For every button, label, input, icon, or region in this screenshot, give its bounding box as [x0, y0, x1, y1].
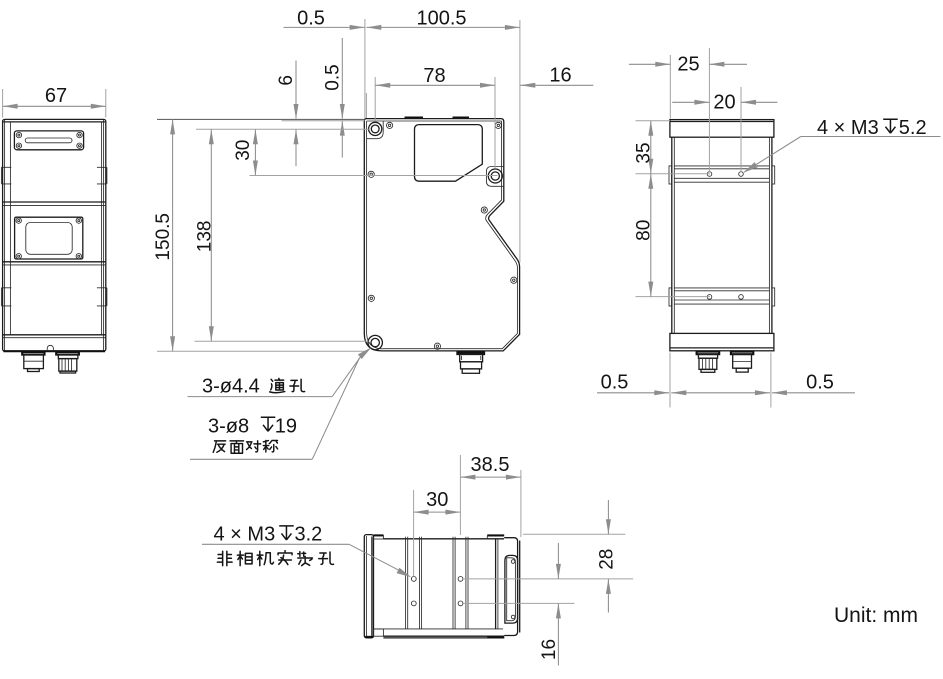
svg-text:150.5: 150.5 — [153, 213, 174, 261]
svg-text:25: 25 — [677, 54, 699, 76]
svg-text:30: 30 — [426, 489, 448, 511]
svg-text:0.5: 0.5 — [297, 8, 325, 30]
svg-text:20: 20 — [713, 92, 735, 114]
svg-text:0.5: 0.5 — [601, 372, 629, 394]
svg-text:4 × M3: 4 × M3 — [817, 117, 879, 139]
svg-text:78: 78 — [423, 65, 445, 87]
svg-text:30: 30 — [233, 140, 254, 161]
svg-text:35: 35 — [634, 142, 655, 163]
svg-text:5.2: 5.2 — [899, 117, 927, 139]
svg-text:0.5: 0.5 — [322, 64, 343, 90]
svg-text:4 × M3: 4 × M3 — [214, 524, 276, 546]
svg-text:100.5: 100.5 — [416, 8, 466, 30]
svg-text:3-ø8: 3-ø8 — [208, 416, 249, 438]
svg-text:6: 6 — [276, 75, 297, 86]
svg-text:38.5: 38.5 — [471, 454, 510, 476]
svg-text:0.5: 0.5 — [806, 372, 834, 394]
svg-text:28: 28 — [597, 549, 618, 570]
svg-text:Unit: mm: Unit: mm — [834, 604, 918, 627]
svg-text:67: 67 — [45, 85, 67, 107]
svg-text:16: 16 — [539, 639, 560, 660]
svg-text:3-ø4.4: 3-ø4.4 — [202, 375, 260, 397]
svg-text:80: 80 — [634, 220, 655, 241]
svg-text:16: 16 — [549, 65, 571, 87]
svg-text:19: 19 — [275, 416, 297, 438]
svg-text:138: 138 — [194, 221, 215, 253]
svg-text:3.2: 3.2 — [295, 524, 323, 546]
